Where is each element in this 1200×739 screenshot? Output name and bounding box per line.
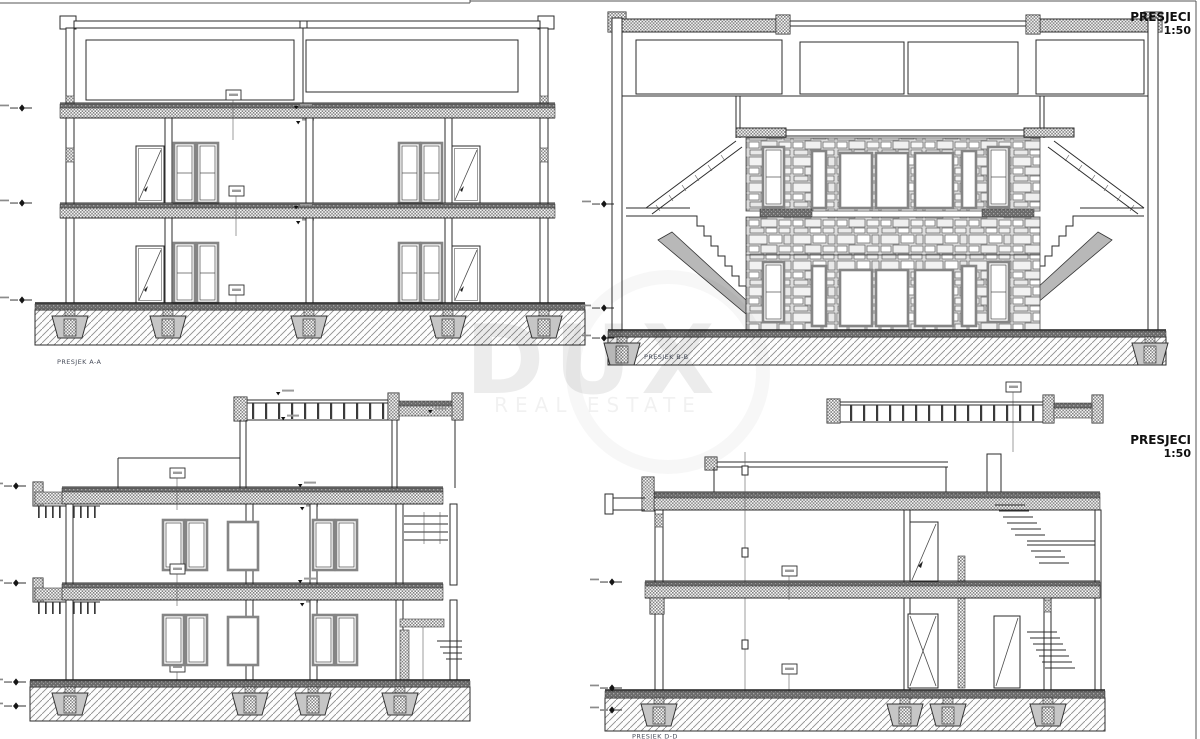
sheet-title: PRESJECI (1130, 10, 1191, 24)
door-glazed (421, 243, 442, 303)
section-b-stone-upper (746, 138, 1040, 211)
section-d-roof-parapet (1043, 395, 1103, 423)
blueprint-sheet: PRESJEK A-A (0, 0, 1200, 739)
door-glazed (763, 147, 784, 207)
section-b-upper-rooms (622, 40, 1148, 138)
elevation-marker (0, 678, 26, 685)
section-b-stair-upper-right (1048, 141, 1144, 214)
section-b-stone-lower (746, 217, 1040, 330)
section-d-slab-mid (645, 581, 1100, 614)
section-a-floor2 (136, 118, 480, 203)
section-a-roof (60, 16, 554, 103)
elevation-mark (276, 390, 294, 396)
section-d-roof-slab (605, 477, 1100, 514)
section-a-floor1 (136, 218, 480, 303)
door-glazed (988, 147, 1009, 207)
title-block-top: PRESJECI 1:50 (1130, 10, 1191, 37)
door-glazed (174, 243, 195, 303)
section-c-slab-mid (33, 578, 443, 614)
window-pane (336, 615, 357, 665)
door-swing (136, 146, 164, 203)
window-pane (313, 615, 334, 665)
section-b-stair-upper-left (646, 141, 742, 214)
section-d-floor2 (655, 452, 1101, 700)
window-pane (186, 520, 207, 570)
callout-box (229, 186, 244, 196)
watermark-tagline: REAL ESTATE (494, 393, 702, 417)
callout-box (226, 90, 241, 100)
elevation-marker (0, 104, 32, 111)
watermark: DUX REAL ESTATE (465, 277, 763, 467)
door-swing (452, 146, 480, 203)
elevation-marker (0, 579, 26, 586)
door-swing (452, 246, 480, 303)
section-d-subroof (705, 454, 1001, 492)
section-b-slab-edges-upper (736, 128, 1074, 137)
sheet-scale: 1:50 (1164, 24, 1192, 37)
section-b-roof (608, 12, 1162, 34)
elevation-marker (582, 200, 614, 207)
door-glazed (988, 262, 1009, 322)
section-d-label: PRESJEK D-D (632, 733, 678, 739)
door-glazed (763, 262, 784, 322)
callout-box (229, 285, 244, 295)
window-pane (336, 520, 357, 570)
section-d: PRESJEK D-D (590, 382, 1105, 739)
sheet-title-2: PRESJECI (1130, 433, 1191, 447)
section-c-floor2 (66, 504, 457, 585)
sheet-scale-2: 1:50 (1164, 447, 1192, 460)
window-pane (186, 615, 207, 665)
section-c-ground (30, 680, 470, 721)
section-a-label: PRESJEK A-A (57, 358, 102, 366)
door-glazed (197, 143, 218, 203)
elevation-marker (0, 702, 26, 709)
elevation-marker (0, 296, 32, 303)
section-d-ground (605, 690, 1105, 731)
callout-box (170, 564, 185, 574)
callout-box (170, 468, 185, 478)
section-c-floor1 (66, 600, 462, 680)
title-block-middle: PRESJECI 1:50 (1130, 433, 1191, 460)
elevation-marker (0, 482, 26, 489)
elevation-marker (0, 199, 32, 206)
door-glazed (399, 243, 420, 303)
callout-box (1006, 382, 1021, 392)
section-c-terrace-railing (234, 397, 392, 421)
elevation-marker (590, 578, 622, 585)
door-glazed (421, 143, 442, 203)
door-glazed (197, 243, 218, 303)
door-swing (136, 246, 164, 303)
door-glazed (174, 143, 195, 203)
section-c-upper-structure (118, 420, 455, 490)
callout-box (782, 664, 797, 674)
section-d-stair-upper (995, 505, 1095, 563)
callout-box (782, 566, 797, 576)
window-pane (313, 520, 334, 570)
section-c-slab-upper (33, 482, 443, 518)
window-pane (163, 520, 184, 570)
section-c (0, 390, 470, 721)
section-d-floor1 (904, 598, 1075, 690)
door-glazed (399, 143, 420, 203)
window-pane (163, 615, 184, 665)
